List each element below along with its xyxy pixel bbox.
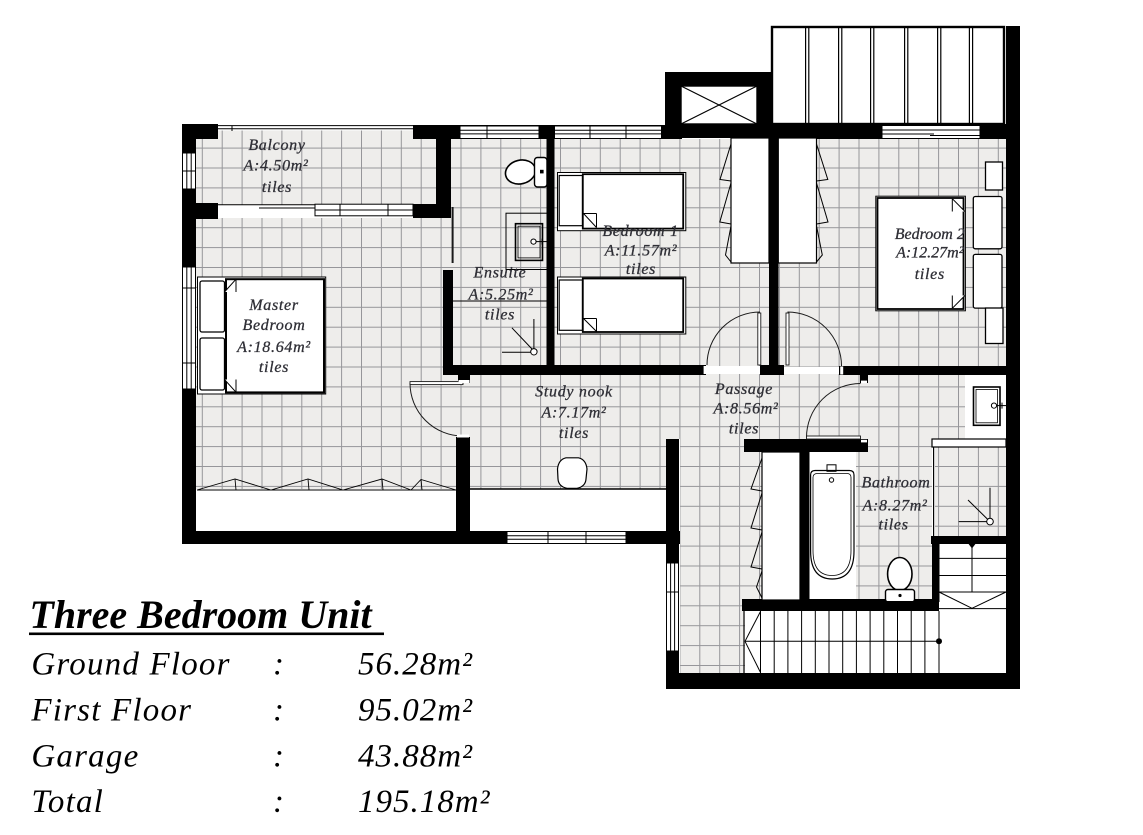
svg-text:A:8.56m²: A:8.56m² xyxy=(712,401,779,418)
svg-text:A:8.27m²: A:8.27m² xyxy=(861,497,928,514)
svg-text:tiles: tiles xyxy=(559,425,589,442)
svg-text:A:11.57m²: A:11.57m² xyxy=(604,243,678,260)
svg-text:Ensuite: Ensuite xyxy=(473,265,527,282)
svg-text:tiles: tiles xyxy=(259,359,289,376)
svg-text::: : xyxy=(273,739,284,775)
svg-text:Passage: Passage xyxy=(714,381,773,398)
svg-text:tiles: tiles xyxy=(262,179,292,196)
svg-text:Garage: Garage xyxy=(31,739,139,775)
svg-text:tiles: tiles xyxy=(915,266,945,283)
svg-text::: : xyxy=(273,693,284,729)
svg-text::: : xyxy=(273,647,284,683)
svg-text:43.88m²: 43.88m² xyxy=(358,739,473,775)
svg-text:195.18m²: 195.18m² xyxy=(358,784,491,820)
svg-text:95.02m²: 95.02m² xyxy=(358,693,473,729)
svg-text:First Floor: First Floor xyxy=(30,693,192,729)
svg-text:tiles: tiles xyxy=(879,516,909,533)
svg-text:tiles: tiles xyxy=(626,261,656,278)
svg-text:Total: Total xyxy=(31,784,104,820)
svg-text:56.28m²: 56.28m² xyxy=(358,647,473,683)
svg-text:tiles: tiles xyxy=(485,306,515,323)
svg-text:Master: Master xyxy=(248,297,299,314)
svg-text:A:12.27m²: A:12.27m² xyxy=(895,244,965,261)
svg-text:A:5.25m²: A:5.25m² xyxy=(467,286,534,303)
svg-text:Bedroom: Bedroom xyxy=(243,317,306,334)
svg-text:Three Bedroom Unit: Three Bedroom Unit xyxy=(29,592,373,637)
svg-text:Bedroom 2: Bedroom 2 xyxy=(895,226,965,243)
svg-text:A:4.50m²: A:4.50m² xyxy=(242,158,309,175)
svg-text:A:18.64m²: A:18.64m² xyxy=(236,339,311,356)
svg-text:Study nook: Study nook xyxy=(535,384,613,401)
svg-text:Bedroom 1: Bedroom 1 xyxy=(602,223,678,240)
svg-text:Bathroom: Bathroom xyxy=(861,474,930,491)
svg-text::: : xyxy=(273,784,284,820)
svg-text:Balcony: Balcony xyxy=(248,137,306,154)
svg-text:Ground Floor: Ground Floor xyxy=(31,647,230,683)
svg-text:tiles: tiles xyxy=(729,420,759,437)
svg-text:A:7.17m²: A:7.17m² xyxy=(540,404,607,421)
